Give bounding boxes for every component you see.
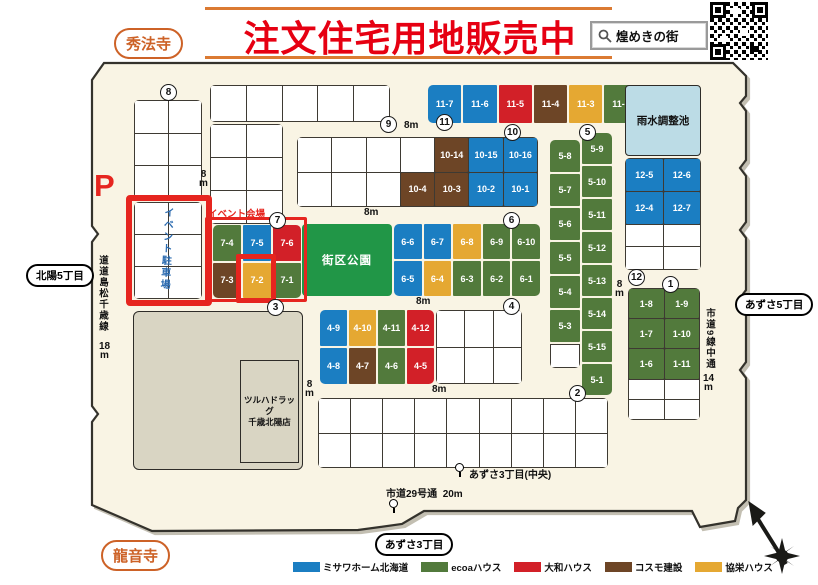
legend-swatch-ecoa [421, 562, 448, 572]
lot-4-8: 4-8 [320, 348, 347, 384]
vacant-lot [351, 399, 382, 433]
temple-label-ryuonji: 龍音寺 [101, 540, 170, 571]
vacant-lot [544, 399, 575, 433]
block-number-1: 1 [662, 276, 679, 293]
legend-item: ecoaハウス [421, 560, 501, 574]
block-number-11: 11 [436, 114, 453, 131]
vacant-lot [480, 434, 511, 468]
legend-label: コスモ建設 [635, 560, 683, 574]
lot-6-6: 6-6 [394, 224, 422, 259]
lot-6-1: 6-1 [512, 261, 540, 296]
block-number-4: 4 [503, 298, 520, 315]
vacant-lot [367, 138, 400, 172]
vacant-lot [512, 399, 543, 433]
builder-legend: ミサワホーム北海道 ecoaハウス 大和ハウス コスモ建設 協栄ハウス [293, 560, 773, 574]
lot-7-2-highlight [236, 254, 276, 303]
lot-5-8: 5-8 [550, 140, 580, 172]
district-label-azusa5: あずさ5丁目 [735, 293, 813, 316]
vacant-lot [319, 399, 350, 433]
vacant-lot [544, 434, 575, 468]
lot-10-1: 10-1 [504, 173, 537, 207]
block-10-lots: 10-1410-1510-1610-410-310-210-1 [297, 137, 538, 207]
vacant-lot [383, 434, 414, 468]
lot-6-7: 6-7 [424, 224, 452, 259]
road-width-8m: 8m [364, 207, 378, 218]
lot-5-4: 5-4 [550, 276, 580, 308]
lot-12-6: 12-6 [664, 159, 701, 191]
block-number-5: 5 [579, 124, 596, 141]
lot-12-4: 12-4 [626, 192, 663, 224]
lot-12-7: 12-7 [664, 192, 701, 224]
vacant-lot [354, 86, 389, 121]
lot-5-7: 5-7 [550, 174, 580, 206]
vacant-lot [665, 380, 700, 399]
lot-5-6: 5-6 [550, 208, 580, 240]
lot-4-7: 4-7 [349, 348, 376, 384]
vacant-lot [247, 158, 282, 190]
temple-label-shuhoji: 秀法寺 [114, 28, 183, 59]
road-width-8m: 8m [614, 280, 625, 298]
road-width-20m: 20m [443, 489, 463, 500]
lot-5-14: 5-14 [582, 298, 612, 329]
lot-11-5: 11-5 [499, 85, 532, 123]
vacant-lot [318, 86, 353, 121]
vacant-lot [626, 225, 663, 247]
road-name-east: 市道9線中通 [702, 308, 716, 378]
vacant-lot [351, 434, 382, 468]
legend-label: 大和ハウス [544, 560, 592, 574]
block-number-10: 10 [504, 124, 521, 141]
block-2-lots [318, 398, 608, 468]
lot-11-6: 11-6 [463, 85, 496, 123]
vacant-lot [415, 399, 446, 433]
block-number-9: 9 [380, 116, 397, 133]
vacant-lot [447, 399, 478, 433]
road-name-south: 市道29号通 20m [386, 485, 463, 500]
block-number-2: 2 [569, 385, 586, 402]
vacant-lot [169, 101, 202, 133]
block-5-lots-right: 5-95-105-115-125-135-145-155-1 [582, 133, 612, 395]
lot-1-11: 1-11 [665, 349, 700, 378]
parking-mark: P [94, 168, 115, 204]
lot-10-15: 10-15 [469, 138, 502, 172]
legend-label: ミサワホーム北海道 [323, 560, 408, 574]
lot-4-11: 4-11 [378, 310, 405, 346]
lot-5-15: 5-15 [582, 331, 612, 362]
lot-10-14: 10-14 [435, 138, 468, 172]
vacant-lot [319, 434, 350, 468]
vacant-lot [576, 434, 607, 468]
block-number-8: 8 [160, 84, 177, 101]
lot-6-4: 6-4 [424, 261, 452, 296]
block-4-vacant-lots [436, 310, 522, 384]
legend-label: ecoaハウス [451, 560, 501, 574]
vacant-lot [629, 380, 664, 399]
block-1-lots: 1-81-91-71-101-61-11 [628, 288, 700, 420]
lot-4-5: 4-5 [407, 348, 434, 384]
block-number-7: 7 [269, 212, 286, 229]
legend-swatch-misawa [293, 562, 320, 572]
lot-6-9: 6-9 [483, 224, 511, 259]
legend-item: ミサワホーム北海道 [293, 560, 408, 574]
vacant-lot [665, 400, 700, 419]
drugstore-name-line1: ツルハドラッグ [241, 395, 298, 417]
lot-6-5: 6-5 [394, 261, 422, 296]
lot-6-3: 6-3 [453, 261, 481, 296]
lot-6-2: 6-2 [483, 261, 511, 296]
vacant-lot [332, 173, 365, 207]
lot-1-8: 1-8 [629, 289, 664, 318]
vacant-lot [494, 348, 521, 384]
vacant-lot [211, 86, 246, 121]
vacant-lot [211, 125, 246, 157]
flyer-page: 注文住宅用地販売中 秀法寺 煌めきの街 イベント駐車場 P [0, 0, 818, 585]
block-number-6: 6 [503, 212, 520, 229]
vacant-lot [283, 86, 318, 121]
vacant-lot [480, 399, 511, 433]
lot-6-8: 6-8 [453, 224, 481, 259]
lot-4-6: 4-6 [378, 348, 405, 384]
vacant-lot [494, 311, 521, 347]
vacant-lot [550, 344, 580, 368]
vacant-lot [383, 399, 414, 433]
district-label-azusa3: あずさ3丁目 [375, 533, 453, 556]
lot-10-3: 10-3 [435, 173, 468, 207]
vacant-lot [437, 311, 464, 347]
lot-5-13: 5-13 [582, 265, 612, 296]
block-5-lots-left: 5-85-75-65-55-45-3 [550, 140, 580, 368]
vacant-lot [247, 125, 282, 157]
vacant-lot [169, 134, 202, 166]
vacant-lot [465, 348, 492, 384]
lot-1-6: 1-6 [629, 349, 664, 378]
road-width-8m: 8m [416, 296, 430, 307]
legend-item: 協栄ハウス [695, 560, 773, 574]
block-6-lots: 6-66-76-86-96-106-56-46-36-26-1 [394, 224, 540, 296]
legend-item: コスモ建設 [605, 560, 683, 574]
vacant-lot [437, 348, 464, 384]
block-number-12: 12 [628, 269, 645, 286]
drugstore-name-line2: 千歳北陽店 [248, 417, 291, 428]
pond: 雨水調整池 [625, 85, 701, 156]
legend-item: 大和ハウス [514, 560, 592, 574]
lot-4-9: 4-9 [320, 310, 347, 346]
lot-5-12: 5-12 [582, 232, 612, 263]
vacant-lot [512, 434, 543, 468]
road-width-8m: 8m [432, 384, 446, 395]
event-site-label: イベント会場 [208, 206, 265, 220]
block-8-lots [134, 100, 202, 199]
block-number-3: 3 [267, 299, 284, 316]
vacant-lot [247, 86, 282, 121]
lot-1-9: 1-9 [665, 289, 700, 318]
map-layer: イベント駐車場 P 11-711-611-511-411-311-211-1 1… [0, 0, 818, 585]
lot-5-1: 5-1 [582, 364, 612, 395]
lot-4-12: 4-12 [407, 310, 434, 346]
vacant-lot [664, 247, 701, 269]
road-width-8m: 8m [198, 170, 209, 188]
busstop-icon [455, 463, 465, 477]
road-width-8m: 8m [404, 120, 418, 131]
legend-swatch-daiwa [514, 562, 541, 572]
busstop-icon [389, 499, 399, 513]
vacant-lot [135, 166, 168, 198]
block-12-lots: 12-512-612-412-7 [625, 158, 701, 270]
lot-5-10: 5-10 [582, 166, 612, 197]
park: 街区公園 [302, 224, 392, 296]
vacant-lot [415, 434, 446, 468]
drugstore-building: ツルハドラッグ 千歳北陽店 [240, 360, 299, 463]
vacant-lot [576, 399, 607, 433]
legend-swatch-cosmo [605, 562, 632, 572]
vacant-lot [626, 247, 663, 269]
vacant-lot [298, 138, 331, 172]
lot-1-10: 1-10 [665, 319, 700, 348]
lot-11-4: 11-4 [534, 85, 567, 123]
lot-5-3: 5-3 [550, 310, 580, 342]
lot-10-4: 10-4 [401, 173, 434, 207]
vacant-lot [447, 434, 478, 468]
lot-4-10: 4-10 [349, 310, 376, 346]
road-name-west: 道道島松千歳線 [95, 255, 109, 350]
block-4-lots: 4-94-104-114-124-84-74-64-5 [320, 310, 434, 384]
vacant-lot [169, 166, 202, 198]
lot-12-5: 12-5 [626, 159, 663, 191]
vacant-lot [401, 138, 434, 172]
lot-5-5: 5-5 [550, 242, 580, 274]
vacant-lot [135, 134, 168, 166]
vacant-lot [135, 101, 168, 133]
lot-6-10: 6-10 [512, 224, 540, 259]
lot-11-3: 11-3 [569, 85, 602, 123]
vacant-lot [298, 173, 331, 207]
road-width-8m: 8m [304, 380, 315, 398]
lot-1-7: 1-7 [629, 319, 664, 348]
legend-label: 協栄ハウス [725, 560, 773, 574]
district-label-hokuyo5: 北陽5丁目 [26, 264, 94, 287]
lot-10-16: 10-16 [504, 138, 537, 172]
vacant-lot [367, 173, 400, 207]
vacant-lot [332, 138, 365, 172]
legend-swatch-kyoei [695, 562, 722, 572]
busstop-label: あずさ3丁目(中央) [469, 466, 551, 481]
block-9-lots-top [210, 85, 390, 122]
vacant-lot [465, 311, 492, 347]
lot-5-11: 5-11 [582, 199, 612, 230]
lot-10-2: 10-2 [469, 173, 502, 207]
vacant-lot [211, 158, 246, 190]
vacant-lot [664, 225, 701, 247]
vacant-lot [629, 400, 664, 419]
